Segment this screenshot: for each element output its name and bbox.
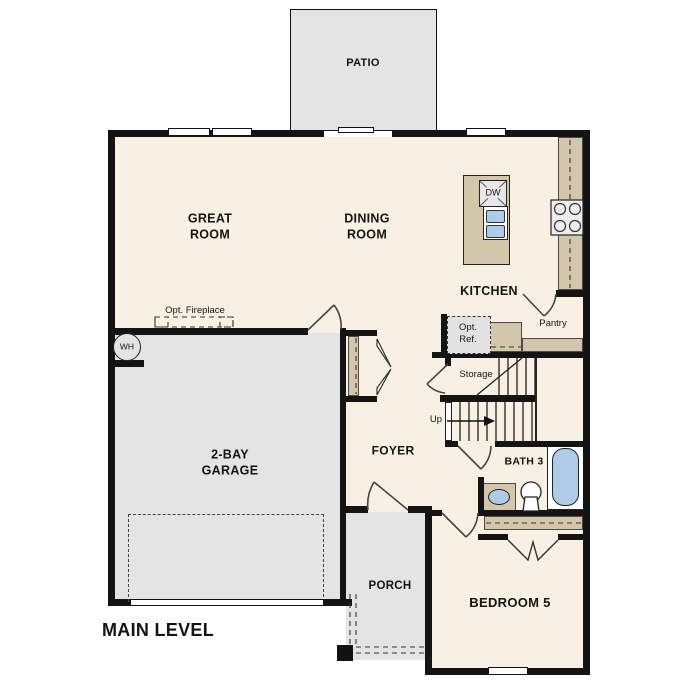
stair-stringer [445,402,452,441]
opt-fireplace-label: Opt. Fireplace [165,305,225,317]
window [168,128,210,136]
vanity-sink [488,489,510,505]
bathtub [552,448,579,506]
wall [478,477,484,516]
pantry-label: Pantry [539,318,566,330]
wall [346,330,377,336]
plan-title: MAIN LEVEL [102,619,214,642]
wall [432,510,442,516]
storage-label: Storage [459,369,492,381]
patio-label: PATIO [346,57,379,71]
dining-room-label: DINING ROOM [344,211,390,242]
opt-ref-label: Opt. Ref. [459,322,477,346]
great-room-label: GREAT ROOM [188,211,232,242]
window [488,667,528,675]
kitchen-counter-right [558,137,583,290]
wall [340,328,346,606]
garage-door [130,599,324,606]
bedroom-closet-shelf [484,516,583,530]
wall [445,356,451,366]
window [212,128,252,136]
wall [478,534,508,540]
porch-label: PORCH [368,579,411,593]
stair-rail-wall [440,395,536,402]
dishwasher-label: DW [486,187,501,198]
wall [495,441,590,447]
pantry-counter [522,338,583,352]
wall [425,510,432,675]
floor-plan: PATIO GREAT ROOM DINING ROOM KITCHEN Pan… [0,0,687,687]
water-heater-label: WH [120,342,134,353]
garage-label: 2-BAY GARAGE [202,447,259,478]
wall [556,290,590,297]
up-label: Up [430,414,442,426]
sink-bowl [486,225,505,238]
wall [346,396,377,402]
wall [558,534,590,540]
room-patio [290,9,437,135]
wall [108,130,115,606]
foyer-label: FOYER [372,444,415,459]
kitchen-label: KITCHEN [460,284,518,300]
kitchen-counter-mid [489,322,522,352]
wall [445,441,458,447]
foyer-closet-shelf [348,336,359,396]
wall [108,328,308,335]
wall [583,130,590,675]
bedroom5-label: BEDROOM 5 [469,595,550,611]
sliding-patio-door [338,127,374,133]
window [466,128,506,136]
wall [478,510,590,516]
wall [346,506,368,513]
wall [108,360,144,367]
garage-door-recess [128,514,324,602]
sink-bowl [486,210,505,223]
bath3-label: BATH 3 [505,455,544,468]
